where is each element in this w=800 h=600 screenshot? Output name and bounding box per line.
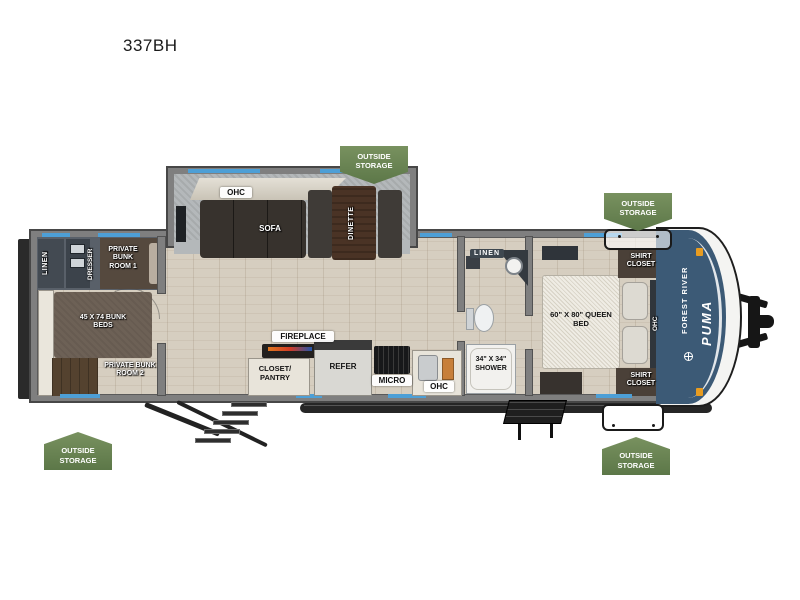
window <box>596 394 632 398</box>
fireplace-flame <box>268 347 312 351</box>
pillow <box>622 282 648 320</box>
forest-river-logo: FOREST RIVER <box>680 252 695 348</box>
dinette-label: DINETTE <box>348 192 360 254</box>
step-leg <box>518 422 521 440</box>
linen-rear-label: LINEN <box>42 241 58 286</box>
dresser-label: DRESSER <box>87 240 99 288</box>
tv <box>176 206 186 242</box>
step-tread <box>195 438 231 443</box>
shirt-closet-top-label: SHIRT CLOSET <box>620 253 662 270</box>
outside-storage-label: OUTSIDE STORAGE <box>604 199 672 218</box>
sofa-label: SOFA <box>250 224 290 234</box>
pillow <box>622 326 648 364</box>
clearance-light <box>696 248 703 256</box>
linen-bath-label: LINEN <box>470 249 504 258</box>
window <box>98 233 140 237</box>
private-bunk-room-1-label: PRIVATE BUNK ROOM 1 <box>104 246 142 271</box>
bedroom-bench <box>540 372 582 394</box>
hitch-coupler <box>756 315 774 328</box>
shirt-closet-bottom-label: SHIRT CLOSET <box>618 372 664 389</box>
ohc-bedroom-label: OHC <box>652 304 662 344</box>
floorplan-title: 337BH <box>123 36 177 56</box>
dresser-shelf <box>70 258 85 268</box>
refer-label: REFER <box>316 362 370 372</box>
ohc-living-label: OHC <box>220 187 252 198</box>
step-tread <box>213 420 249 425</box>
dinette-bench <box>378 190 402 258</box>
step-tread <box>204 429 240 434</box>
outside-storage-label: OUTSIDE STORAGE <box>602 451 670 470</box>
window <box>188 169 260 173</box>
dresser-shelf <box>70 244 85 254</box>
fold-out-step <box>503 400 567 424</box>
outside-storage-label: OUTSIDE STORAGE <box>340 152 408 171</box>
outside-storage-badge: OUTSIDE STORAGE <box>602 437 670 475</box>
outside-storage-badge: OUTSIDE STORAGE <box>44 432 112 470</box>
window <box>42 233 70 237</box>
micro-label: MICRO <box>372 375 412 386</box>
step-tread <box>231 402 267 407</box>
toilet-tank <box>466 308 474 330</box>
closet-pantry-label: CLOSET/ PANTRY <box>250 364 300 383</box>
bunk-beds-label: 45 X 74 BUNK BEDS <box>72 314 134 331</box>
outside-storage-label: OUTSIDE STORAGE <box>44 446 112 465</box>
shower-label: 34" X 34" SHOWER <box>468 356 514 374</box>
toilet <box>474 304 494 332</box>
floorplan-canvas: 337BH LINEN DRESSER PRIVATE BUNK ROOM 1 … <box>0 0 800 600</box>
private-bunk-room-2-label: PRIVATE BUNK ROOM 2 <box>102 362 158 379</box>
bunkroom-wall <box>158 344 165 395</box>
queen-bed-label: 60" X 80" QUEEN BED <box>548 310 614 329</box>
outside-storage-badge: OUTSIDE STORAGE <box>604 193 672 231</box>
cutting-board <box>442 358 454 380</box>
microwave <box>374 346 410 374</box>
puma-logo: PUMA <box>699 288 719 358</box>
window <box>420 233 452 237</box>
storage-compartment-door <box>604 229 672 250</box>
ohc-kitchen-label: OHC <box>424 381 454 392</box>
rear-bumper <box>18 239 31 399</box>
bunk-room-2-bed <box>52 358 98 396</box>
window <box>60 394 100 398</box>
step-tread <box>222 411 258 416</box>
bathroom-wall <box>458 237 464 311</box>
clearance-light <box>696 388 703 396</box>
bunkroom-wall <box>158 237 165 293</box>
fireplace-label: FIREPLACE <box>272 331 334 342</box>
bathroom-sink <box>505 257 523 275</box>
globe-icon <box>684 352 693 361</box>
kitchen-sink <box>418 355 438 381</box>
dinette-bench <box>308 190 332 258</box>
bedroom-cabinet <box>542 246 578 260</box>
bathroom-wall <box>526 350 532 395</box>
storage-compartment-door <box>602 404 664 431</box>
